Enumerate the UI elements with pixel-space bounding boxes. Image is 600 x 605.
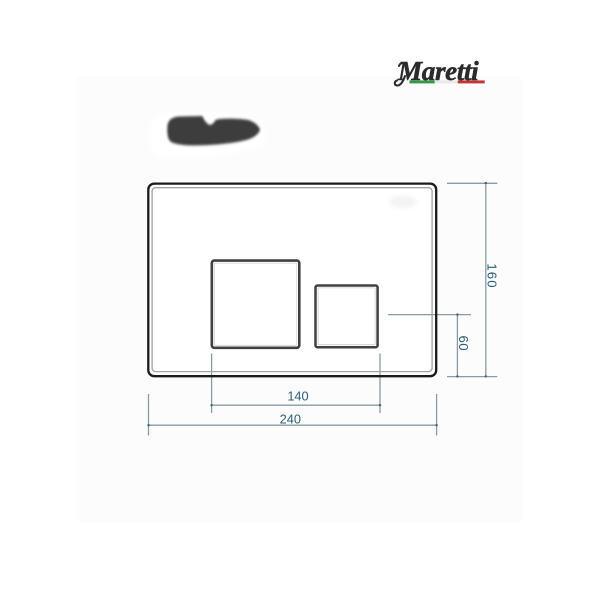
svg-text:240: 240 xyxy=(280,411,301,426)
svg-text:60: 60 xyxy=(456,335,471,350)
svg-text:140: 140 xyxy=(287,389,308,404)
svg-text:160: 160 xyxy=(485,263,500,288)
